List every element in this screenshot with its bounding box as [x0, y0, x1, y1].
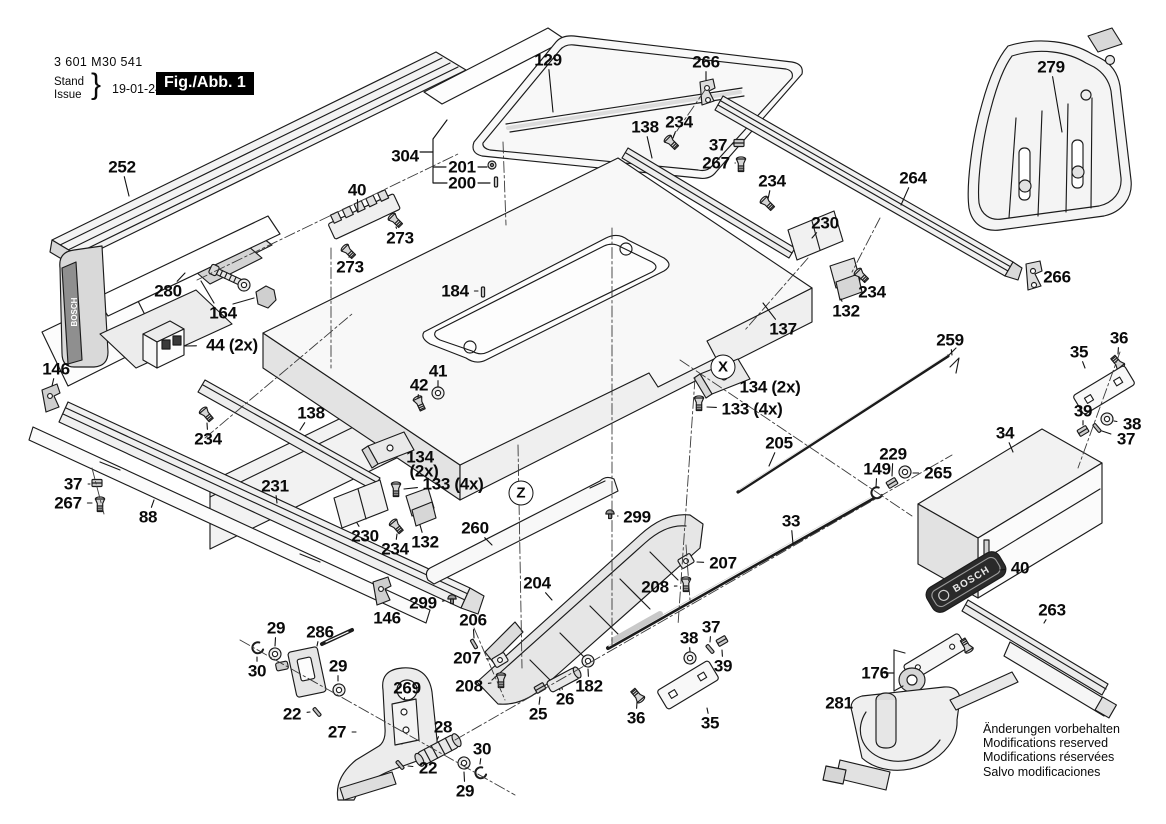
leader-line-35 — [707, 708, 708, 713]
part-132-clamp-mid — [406, 488, 436, 526]
leader-line-40 — [357, 200, 358, 212]
modifications-reserved-notes: Änderungen vorbehalten Modifications res… — [983, 722, 1120, 779]
part-279-blade-guard — [968, 28, 1131, 230]
part-164-bolt-set — [201, 264, 276, 308]
leader-line-29 — [275, 638, 276, 646]
note-line: Modifications reserved — [983, 736, 1120, 750]
part-35-plate-right — [1073, 365, 1136, 415]
issue-label: Issue — [54, 89, 82, 101]
leader-line-35 — [1083, 362, 1085, 368]
leader-line-234 — [396, 534, 397, 539]
part-35-plate-bottom — [657, 660, 720, 710]
note-line: Salvo modificaciones — [983, 765, 1120, 779]
leader-line-206 — [474, 630, 475, 638]
note-line: Modifications réservées — [983, 750, 1120, 764]
part-132-clamp-topright — [830, 258, 862, 300]
part-176-clamp-set — [884, 633, 974, 692]
leader-line-259 — [951, 350, 952, 355]
leader-line-204 — [546, 593, 552, 600]
figure-label-box: Fig./Abb. 1 — [156, 72, 254, 95]
leader-line-229 — [892, 464, 893, 476]
part-40-ledge — [325, 187, 400, 239]
fence-brand-text: BOSCH — [70, 297, 79, 326]
leader-line-234 — [864, 281, 865, 282]
leader-line-205 — [769, 453, 775, 466]
document-part-number: 3 601 M30 541 — [54, 55, 143, 69]
leader-line-88 — [151, 500, 154, 507]
part-266-clip-right — [1026, 261, 1042, 290]
diagram-line-art: BOSCH — [0, 0, 1166, 824]
leader-line-149 — [876, 479, 877, 487]
part-259-spring-clip — [947, 348, 959, 373]
leader-line-138 — [300, 423, 305, 430]
stand-issue-brace: } — [91, 68, 101, 102]
leader-line-234 — [768, 191, 770, 199]
leader-line-286 — [317, 642, 318, 646]
part-263-rail — [962, 600, 1116, 718]
leader-line-22 — [408, 766, 413, 767]
leader-line-273 — [396, 227, 397, 228]
leader-line-25 — [539, 697, 540, 704]
leader-line-133 (4x) — [404, 488, 417, 489]
leader-line-252 — [124, 177, 129, 196]
part-230-plate-mid — [334, 480, 388, 528]
leader-line-40 — [1000, 570, 1005, 571]
leader-line-132 — [420, 525, 422, 532]
leader-line-263 — [1044, 620, 1046, 623]
stand-label: Stand — [54, 76, 84, 88]
leader-line-230 — [357, 523, 359, 526]
issue-date: 19-01-24 — [112, 82, 162, 96]
leader-line-30 — [480, 759, 481, 764]
part-146-clip-topleft — [42, 384, 60, 412]
leader-line-37 — [1102, 431, 1111, 434]
leader-line-38 — [1114, 421, 1117, 422]
leader-line-29 — [464, 772, 465, 781]
exploded-parts-diagram: BOSCH — [0, 0, 1166, 824]
note-line: Änderungen vorbehalten — [983, 722, 1120, 736]
leader-line-269 — [404, 698, 405, 700]
part-34-beam — [918, 429, 1102, 598]
part-27-leg — [337, 668, 437, 800]
part-230-plate-topright — [788, 211, 843, 260]
